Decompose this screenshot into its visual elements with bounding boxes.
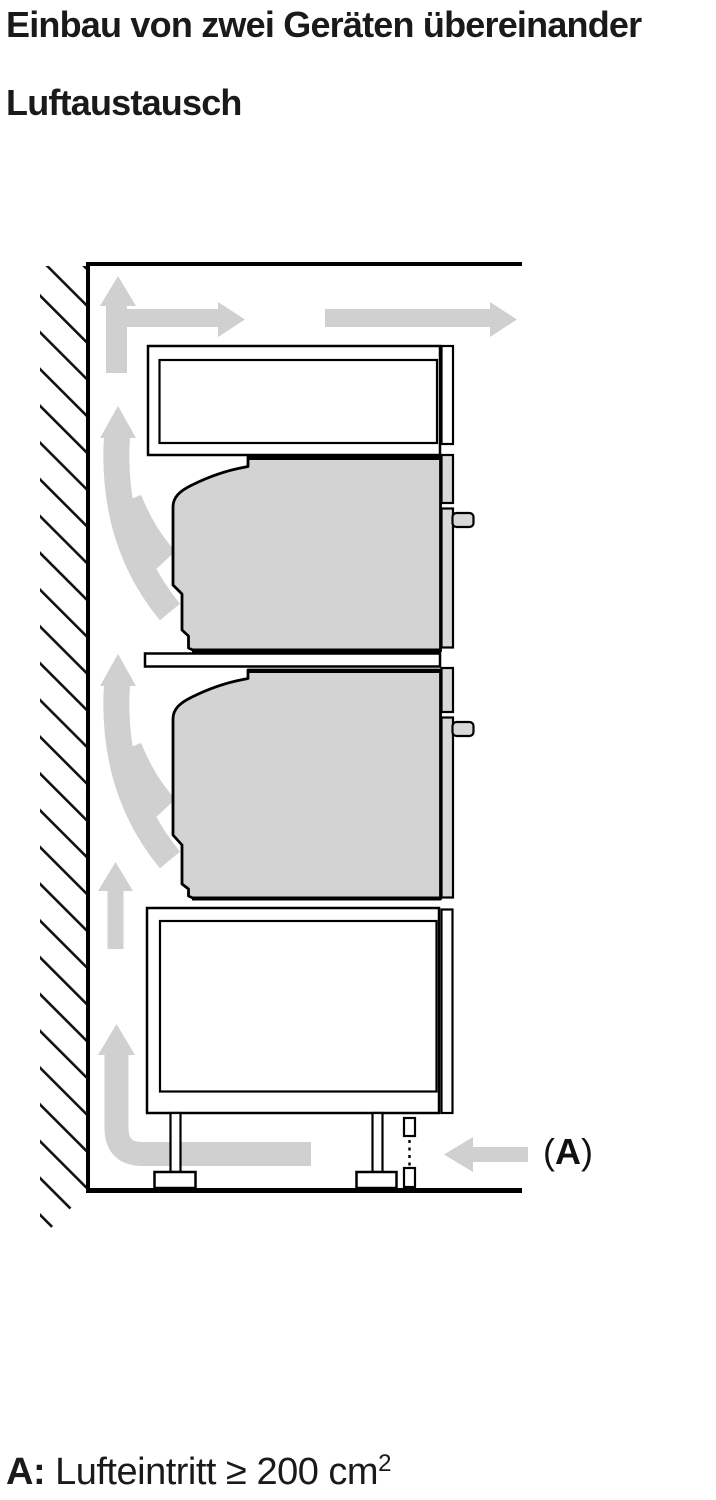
upper-appliance-front-trim [442, 455, 474, 648]
top-compartment [148, 346, 453, 455]
airflow-right-arrow-inner [124, 302, 245, 337]
airflow-curved-arrow-lower [100, 654, 170, 860]
airflow-up-arrow-mid [98, 862, 133, 949]
caption-prefix: A: [6, 1451, 45, 1493]
middle-shelf [145, 654, 440, 667]
cabinet-foot-right [357, 1172, 397, 1188]
airflow-right-arrow-outer [325, 302, 517, 337]
upper-appliance-knob [453, 513, 474, 527]
cabinet-foot-left [155, 1172, 196, 1188]
lower-appliance-knob [453, 722, 474, 736]
installation-diagram [0, 0, 716, 1500]
air-inlet-marker [404, 1118, 415, 1187]
air-inlet-label-close: ) [581, 1131, 593, 1172]
air-inlet-label-letter: A [555, 1131, 581, 1172]
air-inlet-label-open: ( [543, 1131, 555, 1172]
lower-appliance [173, 668, 474, 899]
upper-appliance [173, 455, 474, 651]
air-inlet-arrow [444, 1137, 528, 1172]
page: Einbau von zwei Geräten übereinander Luf… [0, 0, 716, 1500]
caption: A:Lufteintritt ≥ 200 cm2 [6, 1451, 391, 1494]
caption-body: Lufteintritt ≥ 200 cm [55, 1451, 378, 1493]
lower-appliance-front-trim [442, 668, 474, 898]
air-inlet-label: (A) [543, 1131, 593, 1173]
caption-superscript: 2 [378, 1450, 391, 1477]
wall-hatching [38, 266, 90, 1241]
